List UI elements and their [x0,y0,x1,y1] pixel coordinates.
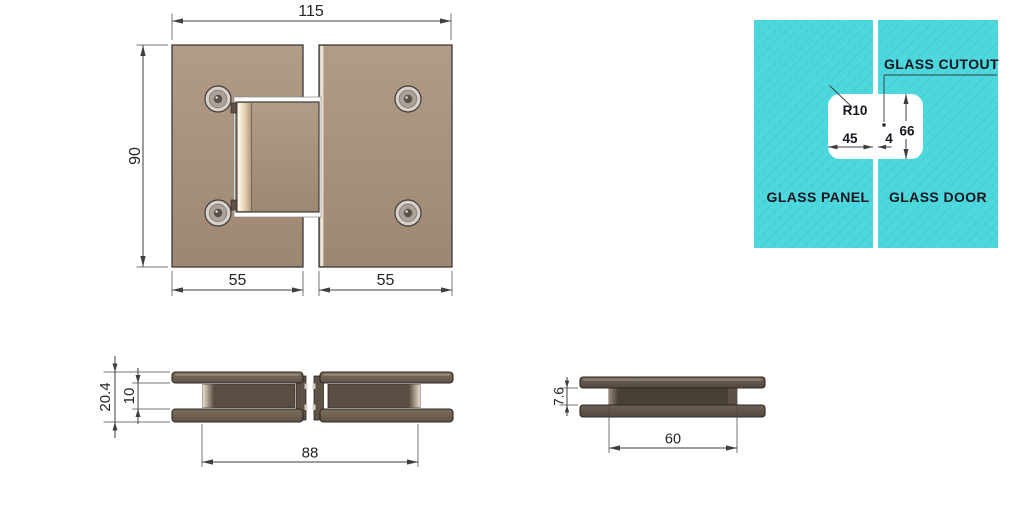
plate-sheen [323,374,450,376]
dim-height-label: 90 [127,147,144,165]
left-body-highlight [203,385,214,408]
arrow-icon [172,18,183,23]
right-bottom-plate [320,409,453,422]
knuckle-highlight-strip [238,103,251,211]
dim-cutout-height-label: 66 [899,124,915,139]
left-bottom-plate [172,409,303,422]
glass-door-label: GLASS DOOR [889,189,987,205]
cutout-leader-dot [882,123,885,126]
dim-left-plate-label: 55 [229,272,247,289]
technical-drawing-canvas: 115 90 55 55 GLASS CUTOUT R10 [0,0,1024,525]
dim-corner-radius-label: R10 [843,103,868,118]
plate-sheen [175,374,300,376]
dim-glass-gap-label: 10 [121,388,138,405]
screw [205,86,231,112]
right-plate [319,45,452,267]
hinge-dimension-drawing: 115 90 55 55 GLASS CUTOUT R10 [0,0,1024,525]
pin-washer [305,384,308,390]
front-view: 115 90 55 55 [127,3,452,296]
arrow-icon [726,445,737,450]
pin-washer [313,384,316,390]
arrow-icon [609,445,620,450]
arrow-icon [113,364,118,373]
knuckle-tab-bottom [231,200,237,210]
arrow-icon [172,287,183,292]
dim-glass-gap-label: 7.6 [552,387,567,406]
left-clamp-body [203,385,295,408]
arrow-icon [292,287,303,292]
glass-cutout-diagram: GLASS CUTOUT R10 66 45 4 GLASS PANEL GLA… [754,20,999,248]
side-view-single: 7.6 60 [552,377,766,453]
dim-cutout-half-label: 45 [842,131,858,146]
arrow-icon [202,459,213,464]
side-view-pair: 20.4 10 88 [97,356,453,467]
dim-total-thickness-label: 20.4 [97,382,114,411]
glass-cutout-label: GLASS CUTOUT [884,56,999,72]
body-end-cap [728,388,737,405]
knuckle-tab-top [231,103,237,113]
arrow-icon [441,287,452,292]
screw [205,200,231,226]
pin-washer [313,405,316,411]
right-body-highlight [409,385,420,408]
arrow-icon [113,422,118,431]
right-clamp-body [328,385,420,408]
arrow-icon [140,256,145,267]
screw [395,86,421,112]
arrow-icon [407,459,418,464]
clamp-body [609,388,737,405]
arrow-icon [565,381,569,389]
arrow-icon [319,287,330,292]
arrow-icon [140,45,145,56]
dim-width-label: 115 [298,3,324,20]
arrow-icon [440,18,451,23]
body-highlight [609,388,618,405]
arrow-icon [136,375,141,383]
dim-body-span-label: 88 [302,445,319,462]
arrow-icon [136,409,141,417]
dim-body-width-label: 60 [665,432,681,448]
plate-sheen [583,379,762,381]
dim-right-plate-label: 55 [377,272,395,289]
pin-washer [305,405,308,411]
dim-gap-label: 4 [885,131,893,146]
glass-panel-label: GLASS PANEL [767,189,870,205]
screw [395,200,421,226]
